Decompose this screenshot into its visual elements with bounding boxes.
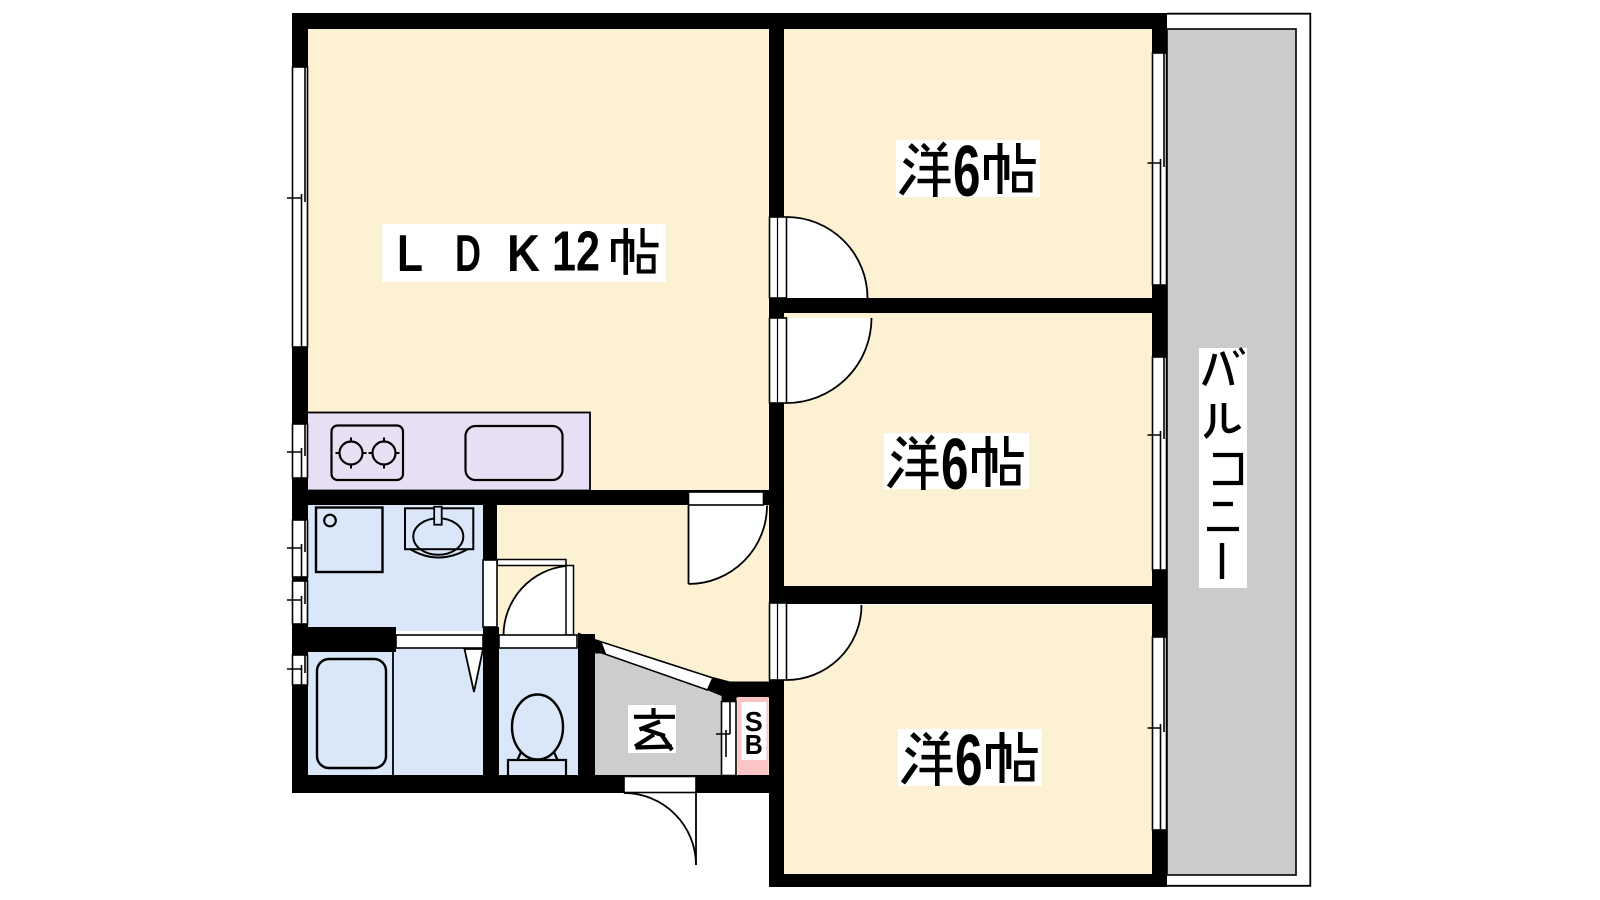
svg-text:L: L: [397, 225, 423, 283]
svg-text:K: K: [507, 225, 540, 283]
svg-text:6: 6: [955, 721, 983, 801]
svg-text:D: D: [455, 225, 481, 283]
svg-text:12: 12: [552, 220, 600, 284]
svg-text:B: B: [745, 729, 763, 760]
svg-text:6: 6: [941, 425, 969, 505]
svg-text:6: 6: [953, 132, 981, 212]
